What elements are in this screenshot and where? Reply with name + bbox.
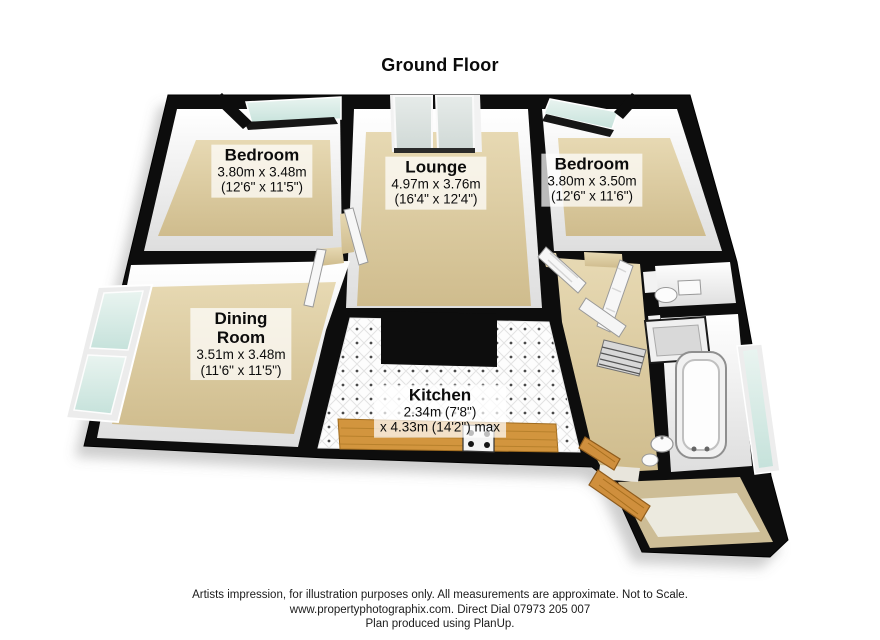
lounge-label: Lounge 4.97m x 3.76m (16'4" x 12'4") [385, 157, 486, 210]
room-size-metric: 2.34m (7'8") [380, 405, 500, 420]
kitchen-island-wall [381, 311, 497, 367]
room-size-imperial: (16'4" x 12'4") [391, 192, 480, 207]
room-size-imperial: (12'6" x 11'6") [547, 189, 636, 204]
disclaimer-line-2: www.propertyphotographix.com. Direct Dia… [0, 603, 880, 618]
disclaimer: Artists impression, for illustration pur… [0, 588, 880, 632]
bathtub [676, 352, 726, 458]
room-size-imperial: x 4.33m (14'2") max [380, 420, 500, 435]
room-name: Room [196, 328, 285, 347]
room-name: Bedroom [217, 146, 306, 165]
floor-plan-page: Ground Floor [0, 0, 880, 640]
disclaimer-line-3: Plan produced using PlanUp. [0, 617, 880, 632]
room-size-metric: 4.97m x 3.76m [391, 177, 480, 192]
bedroom-2-doorway [584, 252, 623, 268]
room-size-metric: 3.80m x 3.50m [547, 174, 636, 189]
room-size-imperial: (12'6" x 11'5") [217, 180, 306, 195]
bathroom-toilet [642, 454, 658, 466]
room-size-metric: 3.80m x 3.48m [217, 165, 306, 180]
room-size-imperial: (11'6" x 11'5") [196, 363, 285, 378]
room-name: Dining [196, 309, 285, 328]
dining-room-label: Dining Room 3.51m x 3.48m (11'6" x 11'5"… [190, 308, 291, 380]
room-name: Lounge [391, 158, 480, 177]
room-name: Kitchen [380, 386, 500, 405]
room-size-metric: 3.51m x 3.48m [196, 347, 285, 362]
disclaimer-line-1: Artists impression, for illustration pur… [0, 588, 880, 603]
kitchen-label: Kitchen 2.34m (7'8") x 4.33m (14'2") max [374, 385, 506, 438]
room-name: Bedroom [547, 155, 636, 174]
bathroom-sink [651, 436, 673, 452]
wc-doorway [643, 271, 658, 293]
floor-plan [0, 0, 880, 640]
bedroom-1-label: Bedroom 3.80m x 3.48m (12'6" x 11'5") [211, 145, 312, 198]
bedroom-2-label: Bedroom 3.80m x 3.50m (12'6" x 11'6") [541, 154, 642, 207]
